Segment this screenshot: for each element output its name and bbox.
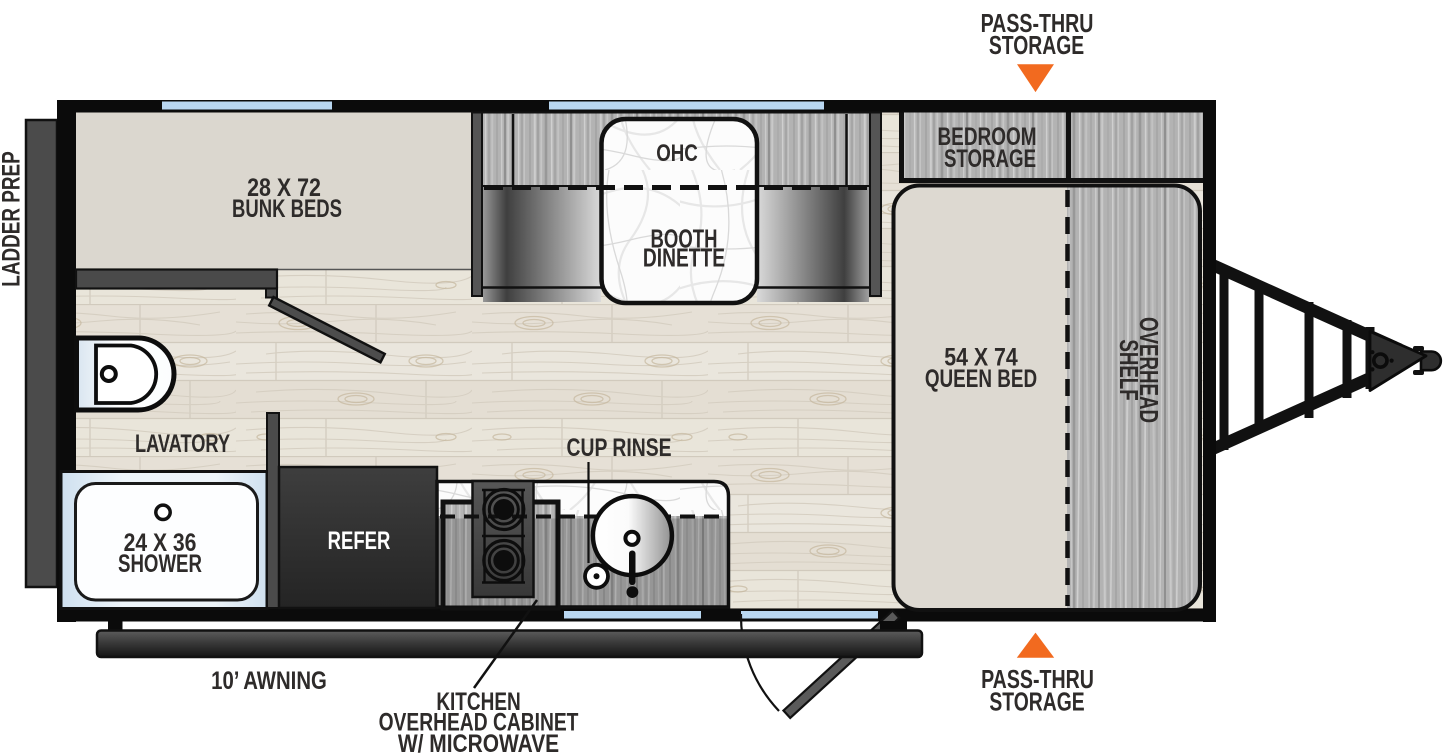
svg-text:CUP RINSE: CUP RINSE <box>567 434 672 462</box>
svg-text:SHOWER: SHOWER <box>118 549 202 577</box>
svg-text:STORAGE: STORAGE <box>944 144 1036 172</box>
svg-text:SHELF: SHELF <box>1114 339 1144 400</box>
svg-text:10’ AWNING: 10’ AWNING <box>211 666 327 695</box>
svg-text:LAVATORY: LAVATORY <box>135 429 230 458</box>
svg-text:BUNK BEDS: BUNK BEDS <box>232 194 342 222</box>
svg-text:DINETTE: DINETTE <box>643 243 725 273</box>
svg-text:W/ MICROWAVE: W/ MICROWAVE <box>398 729 559 753</box>
svg-text:LADDER PREP: LADDER PREP <box>0 151 25 287</box>
svg-text:REFER: REFER <box>328 526 391 554</box>
svg-text:OHC: OHC <box>656 140 698 167</box>
svg-text:STORAGE: STORAGE <box>989 687 1084 717</box>
svg-text:STORAGE: STORAGE <box>989 30 1084 60</box>
svg-text:QUEEN BED: QUEEN BED <box>925 364 1037 392</box>
